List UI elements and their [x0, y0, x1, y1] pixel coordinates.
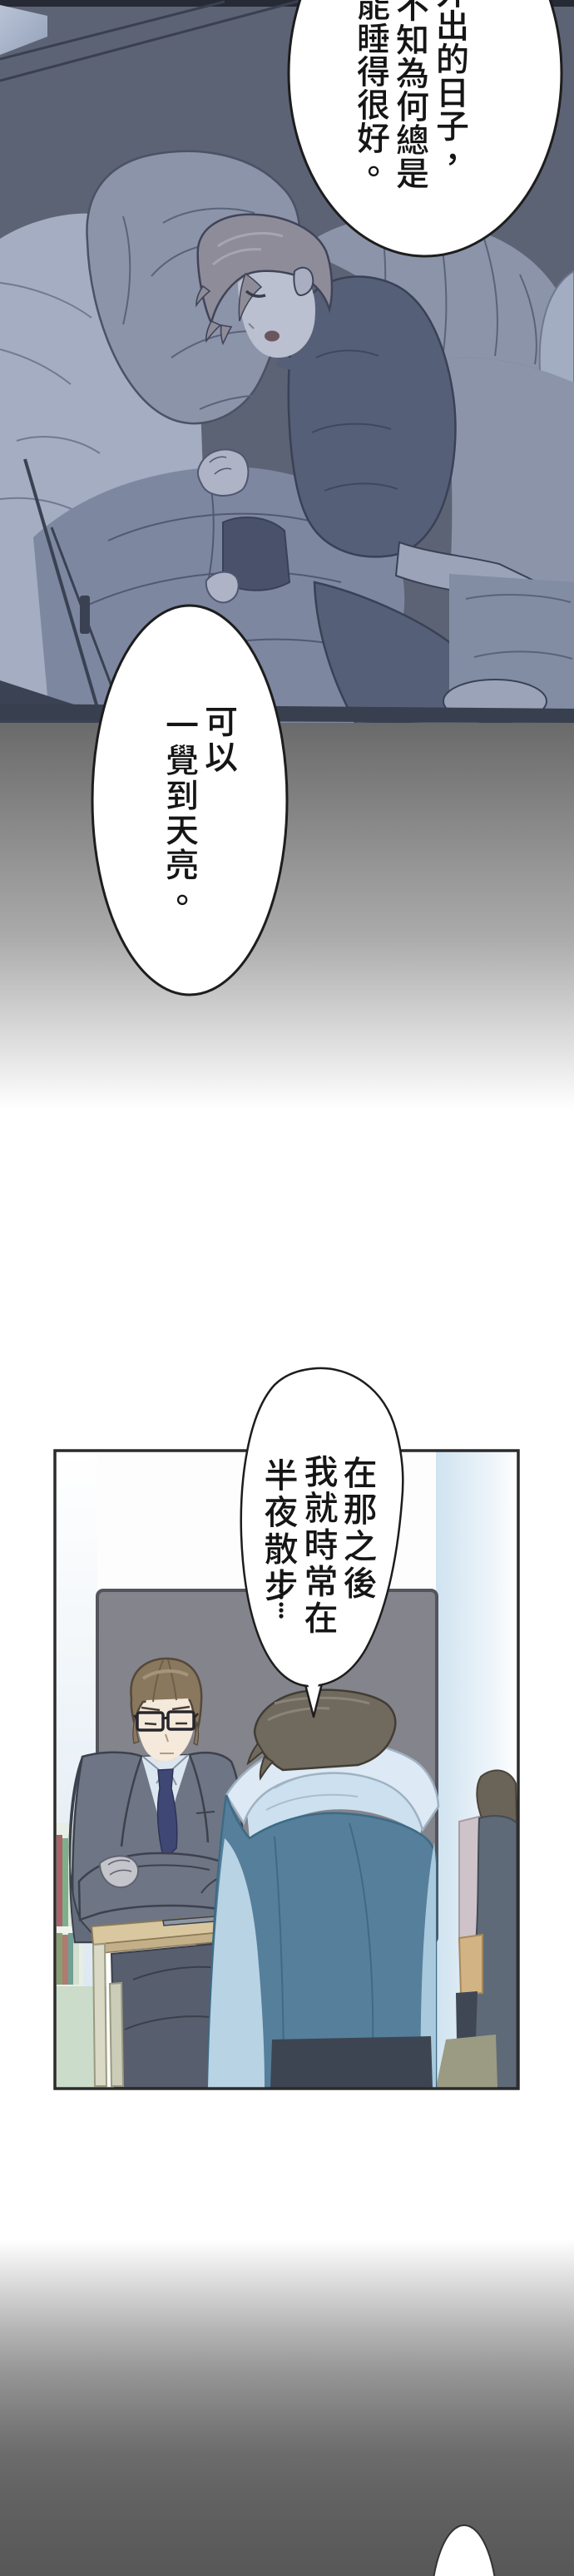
svg-text:一覺到天亮。: 一覺到天亮。	[158, 708, 206, 917]
svg-text:能睡得很好。: 能睡得很好。	[349, 0, 398, 187]
svg-text:半夜散步: 半夜散步	[256, 1457, 306, 1604]
